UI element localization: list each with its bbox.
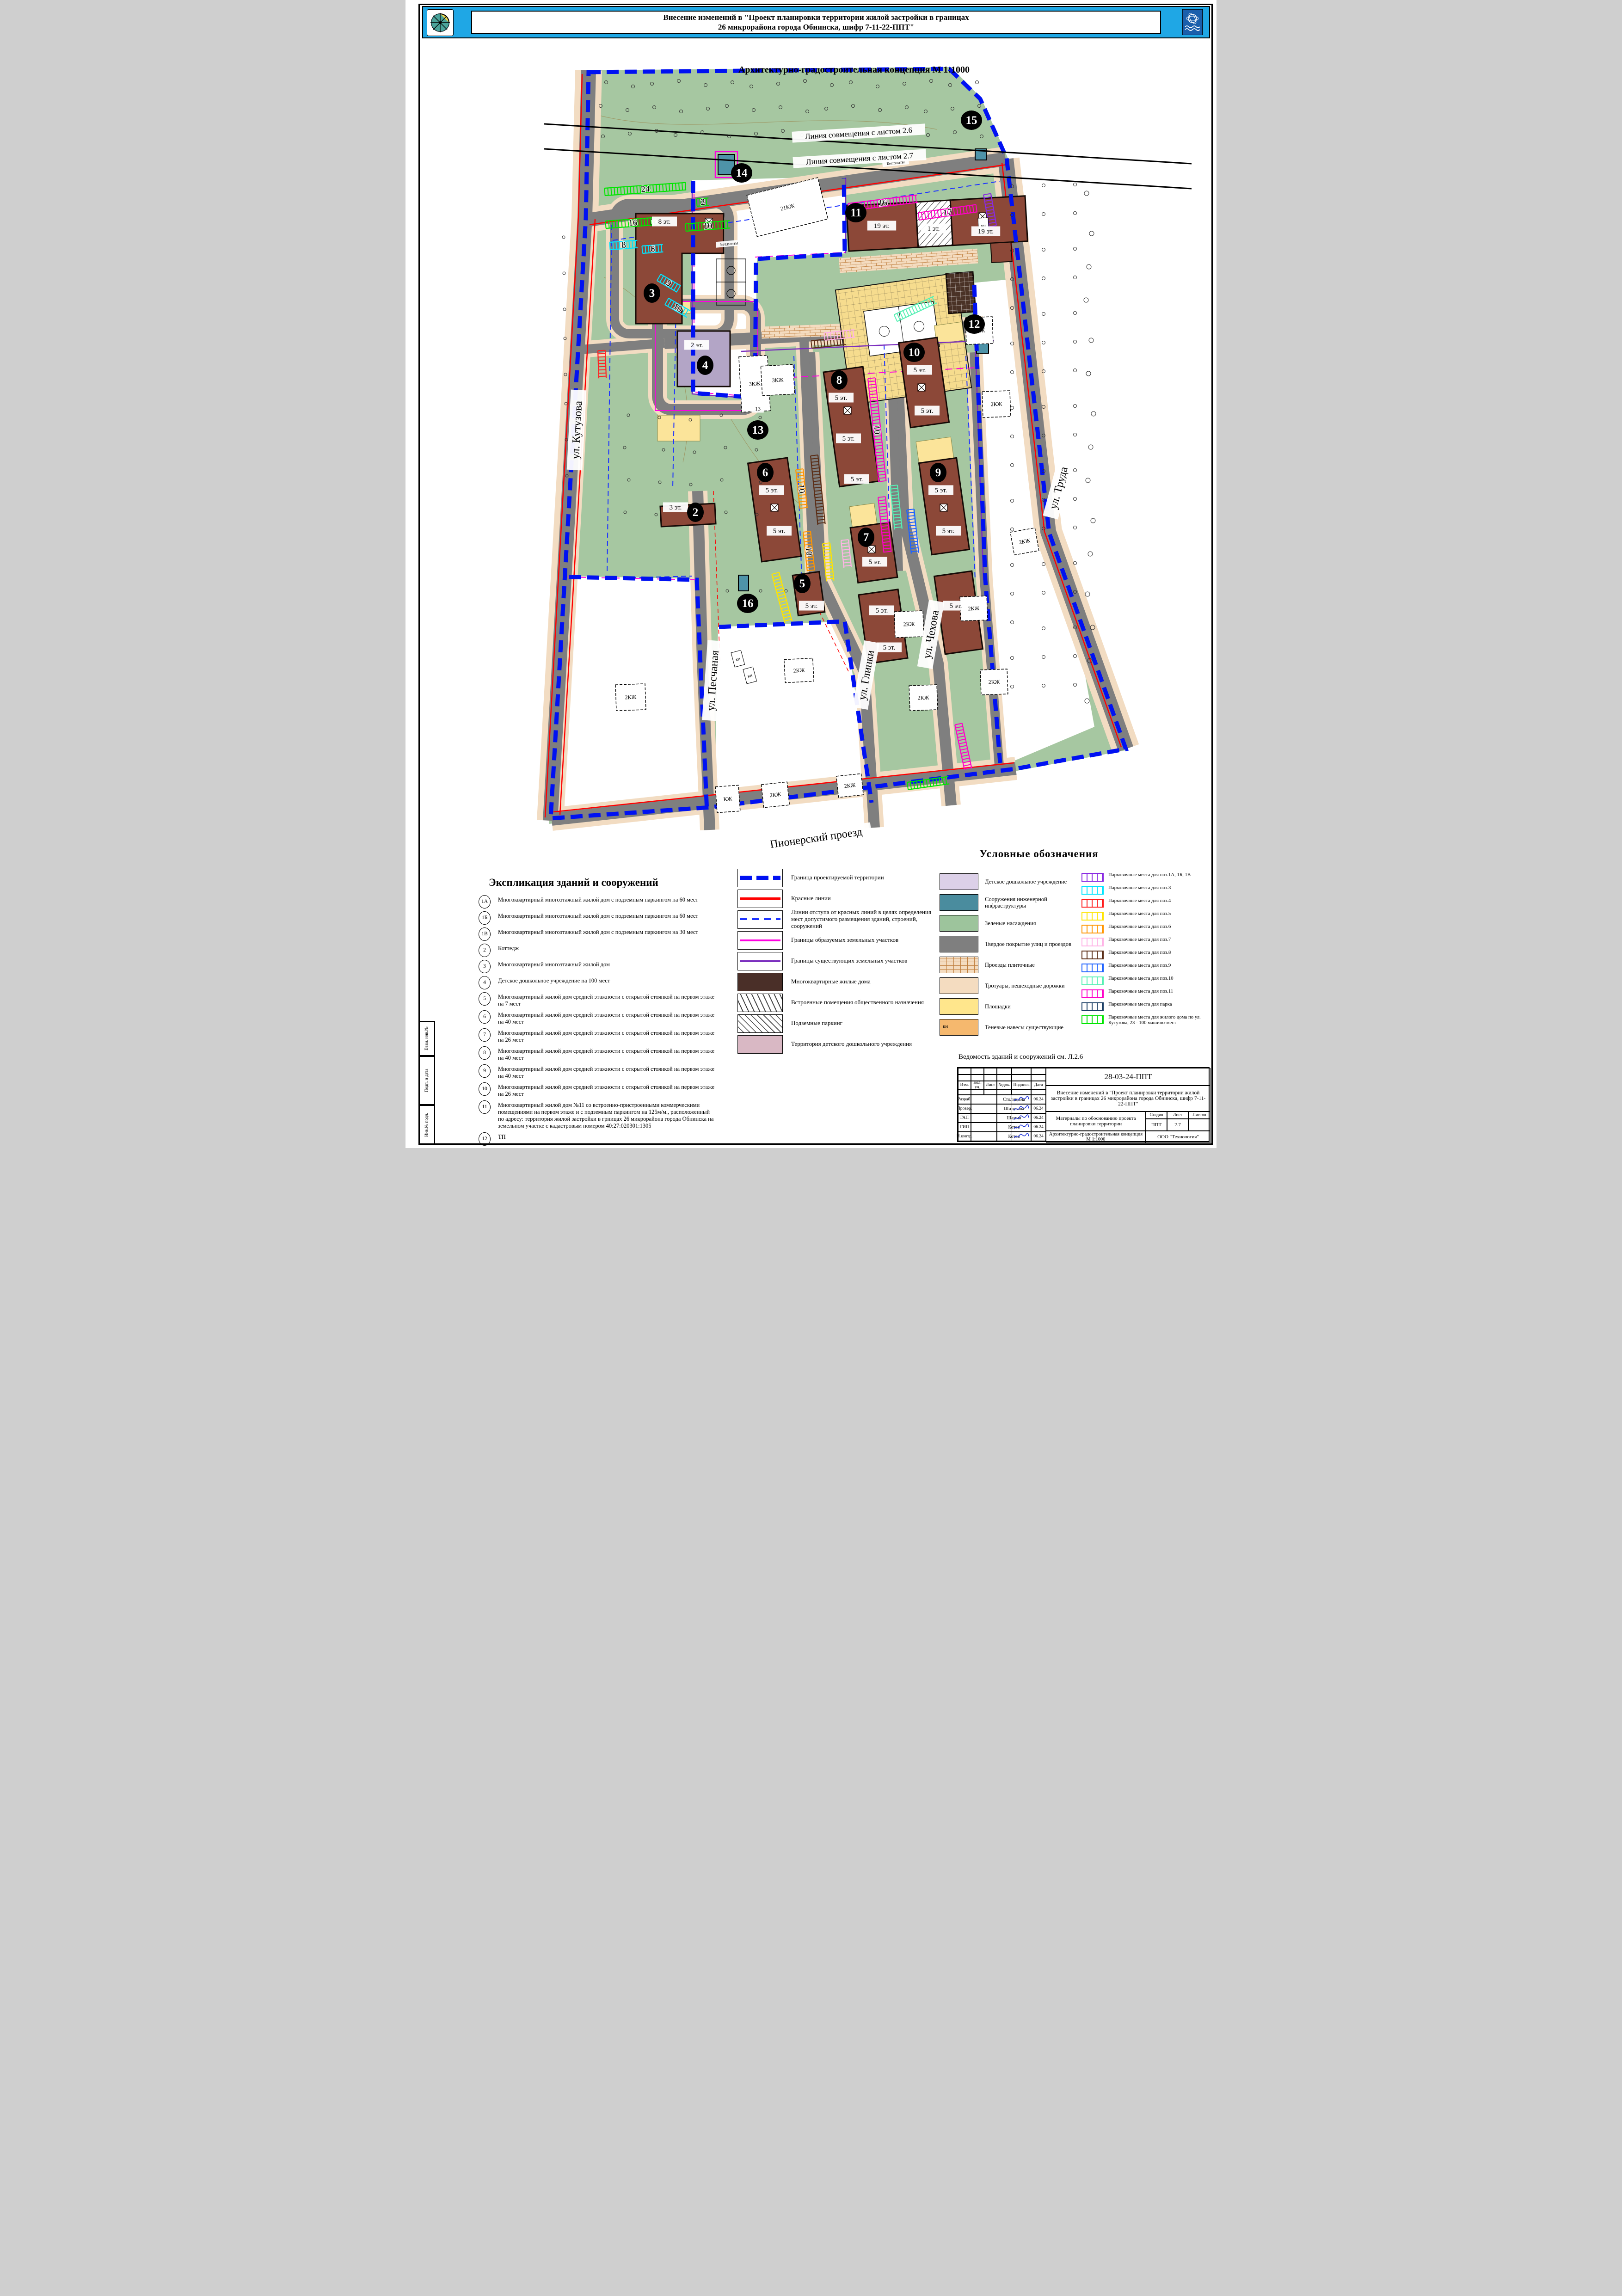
legend-area-item: Площадки — [940, 996, 1078, 1017]
tb-cell — [958, 1068, 971, 1074]
tb-sheet: 2.7 — [1167, 1119, 1188, 1131]
tb-cell — [971, 1123, 997, 1132]
tb-cell — [997, 1068, 1012, 1074]
tb-cell — [1012, 1089, 1031, 1095]
tb-date: 06.24 — [1031, 1104, 1046, 1113]
legend-parking-item: Парковочные места для поз.6 — [1081, 924, 1210, 933]
explication-item-8: 8Многоквартирный жилой дом средней этажн… — [475, 1046, 736, 1062]
item-text: Многоквартирный жилой дом средней этажно… — [498, 1010, 715, 1025]
explication-panel: Экспликация зданий и сооружений 1АМногок… — [475, 877, 736, 1148]
item-number: 7 — [479, 1028, 491, 1042]
tb-role: Провер. — [958, 1104, 971, 1113]
legend-parking-item: Парковочные места для поз.11 — [1081, 988, 1210, 998]
side-stamp-vzam: Взам. инв.№ — [418, 1021, 435, 1056]
legend-parking-item: Парковочные места для поз.9 — [1081, 963, 1210, 972]
tb-cell — [971, 1113, 997, 1123]
explication-item-1Б: 1БМногоквартирный многоэтажный жилой дом… — [475, 911, 736, 925]
parking-swatch — [1081, 951, 1104, 959]
tb-cell — [984, 1089, 997, 1095]
blue-bold-dash-swatch — [737, 869, 783, 887]
parking-swatch — [1081, 938, 1104, 946]
explication-item-6: 6Многоквартирный жилой дом средней этажн… — [475, 1010, 736, 1025]
tb-role: ГИП — [958, 1123, 971, 1132]
side-stamp-inv: Инв.№ подл. — [418, 1105, 435, 1145]
legend-label: Красные линии — [791, 895, 831, 902]
area-swatch — [940, 936, 978, 952]
tb-date: 06.24 — [1031, 1113, 1046, 1123]
legend-area-item: Зеленые насаждения — [940, 913, 1078, 933]
item-number: 5 — [479, 992, 491, 1006]
tb-cell — [1031, 1089, 1046, 1095]
tb-signature — [1012, 1095, 1031, 1104]
explication-item-1А: 1АМногоквартирный многоэтажный жилой дом… — [475, 895, 736, 909]
legend-label: Парковочные места для поз.11 — [1108, 988, 1210, 994]
tb-sheet-label: Лист — [1167, 1111, 1188, 1119]
tb-header-4: Подпись — [1012, 1081, 1031, 1089]
area-swatch — [940, 915, 978, 932]
item-number: 8 — [479, 1046, 491, 1060]
tb-header-5: Дата — [1031, 1081, 1046, 1089]
legend-label: Многоквартирные жилые дома — [791, 978, 871, 985]
legend-parking-item: Парковочные места для поз.5 — [1081, 911, 1210, 921]
legend-label: Парковочные места для поз.1А, 1Б, 1В — [1108, 872, 1210, 878]
tb-cell — [997, 1074, 1012, 1081]
tb-date: 06.24 — [1031, 1095, 1046, 1104]
concept-subtitle: Архитектурно-градостроительная концепция… — [535, 65, 1173, 75]
tb-signature — [1012, 1132, 1031, 1141]
legend-line-item: Линии отступа от красных линий в целях о… — [737, 909, 939, 930]
parking-swatch — [1081, 1015, 1104, 1024]
tb-project: Внесение изменений в "Проект планировки … — [1046, 1086, 1210, 1111]
legend-label: Парковочные места для поз.4 — [1108, 898, 1210, 903]
tb-cell — [984, 1068, 997, 1074]
tb-date: 06.24 — [1031, 1123, 1046, 1132]
explication-item-2: 2Коттедж — [475, 944, 736, 957]
tb-role: ГАП — [958, 1113, 971, 1123]
tb-signature — [1012, 1123, 1031, 1132]
city-emblem-icon — [1180, 9, 1205, 35]
legend-label: Проезды плиточные — [985, 962, 1077, 968]
item-text: Многоквартирный многоэтажный жилой дом с… — [498, 927, 715, 936]
legend-parking-item: Парковочные места для поз.8 — [1081, 950, 1210, 959]
item-text: Коттедж — [498, 944, 715, 952]
sheet: 24216102016171086910101021КЖ3КЖ3КЖ2КЖ2КЖ… — [405, 0, 1216, 1148]
tb-cell — [984, 1074, 997, 1081]
explication-item-1В: 1ВМногоквартирный многоэтажный жилой дом… — [475, 927, 736, 941]
tb-date: 06.24 — [1031, 1132, 1046, 1141]
explication-item-7: 7Многоквартирный жилой дом средней этажн… — [475, 1028, 736, 1044]
legend-label: Парковочные места для поз.6 — [1108, 924, 1210, 929]
area-swatch — [940, 998, 978, 1015]
tb-bottom-title: Архитектурно-градостроительная концепция… — [1046, 1131, 1146, 1143]
parking-swatch — [1081, 989, 1104, 998]
tb-cell — [971, 1074, 984, 1081]
tb-sheets-label: Листов — [1188, 1111, 1210, 1119]
sheet-title-line2: 26 микрорайона города Обнинска, шифр 7-1… — [718, 22, 914, 32]
item-text: Многоквартирный жилой дом средней этажно… — [498, 1046, 715, 1062]
legend-label: Границы образуемых земельных участков — [791, 937, 898, 944]
tb-cell — [971, 1068, 984, 1074]
legend-parking-item: Парковочные места для поз.10 — [1081, 976, 1210, 985]
tb-cell — [971, 1095, 997, 1104]
area-swatch — [940, 957, 978, 973]
legend-label: Парковочные места для парка — [1108, 1001, 1210, 1007]
tb-doc-code: 28-03-24-ППТ — [1046, 1068, 1210, 1086]
legend-line-item: Подземные паркинг — [737, 1013, 939, 1034]
tb-header-3: №док. — [997, 1081, 1012, 1089]
legend-label: Зеленые насаждения — [985, 920, 1077, 927]
item-text: Многоквартирный многоэтажный жилой дом с… — [498, 895, 715, 903]
item-text: Многоквартирный жилой дом средней этажно… — [498, 1082, 715, 1098]
item-text: Многоквартирный жилой дом №11 со встроен… — [498, 1100, 715, 1130]
legend-line-item: Встроенные помещения общественного назна… — [737, 992, 939, 1013]
item-number: 1А — [479, 895, 491, 909]
item-text: Многоквартирный жилой дом средней этажно… — [498, 1064, 715, 1080]
legend-label: Подземные паркинг — [791, 1020, 842, 1027]
legend-area-item: Проезды плиточные — [940, 954, 1078, 975]
tb-cell — [958, 1089, 971, 1095]
parking-swatch — [1081, 964, 1104, 972]
fill-pink-swatch — [737, 1035, 783, 1054]
legend-label: Теневые навесы существующие — [985, 1024, 1077, 1031]
explication-item-10: 10Многоквартирный жилой дом средней этаж… — [475, 1082, 736, 1098]
explication-item-4: 4Детское дошкольное учреждение на 100 ме… — [475, 976, 736, 989]
tb-cell — [958, 1074, 971, 1081]
legend-parking-item: Парковочные места для парка — [1081, 1001, 1210, 1011]
item-number: 6 — [479, 1010, 491, 1024]
fill-brown-swatch — [737, 973, 783, 991]
parking-swatch — [1081, 1002, 1104, 1011]
legend-label: Парковочные места для поз.9 — [1108, 963, 1210, 968]
legend-label: Детское дошкольное учреждение — [985, 878, 1077, 885]
item-text: Детское дошкольное учреждение на 100 мес… — [498, 976, 715, 984]
explication-item-11: 11Многоквартирный жилой дом №11 со встро… — [475, 1100, 736, 1130]
item-text: Многоквартирный жилой дом средней этажно… — [498, 1028, 715, 1044]
legend-label: Встроенные помещения общественного назна… — [791, 999, 924, 1006]
legend-label: Парковочные места для поз.3 — [1108, 885, 1210, 890]
tb-cell — [997, 1089, 1012, 1095]
tb-cell — [1031, 1068, 1046, 1074]
parking-swatch — [1081, 976, 1104, 985]
parking-swatch — [1081, 912, 1104, 921]
legend-label: Парковочные места для поз.5 — [1108, 911, 1210, 916]
legend-label: Твердое покрытие улиц и проездов — [985, 941, 1077, 947]
legend-label: Парковочные места для поз.10 — [1108, 976, 1210, 981]
tb-stage-label: Стадия — [1146, 1111, 1167, 1119]
legend-parking-item: Парковочные места для поз.3 — [1081, 885, 1210, 895]
tb-role: Н.контр. — [958, 1132, 971, 1141]
legend-label: Граница проектируемой территории — [791, 874, 884, 881]
legend-label: Границы существующих земельных участков — [791, 958, 907, 964]
parking-swatch — [1081, 873, 1104, 882]
item-text: Многоквартирный многоэтажный жилой дом с… — [498, 911, 715, 920]
parking-swatch — [1081, 886, 1104, 895]
explication-item-3: 3Многоквартирный многоэтажный жилой дом — [475, 960, 736, 973]
tb-company: ООО "Технология" — [1146, 1131, 1210, 1143]
tb-role: Разраб. — [958, 1095, 971, 1104]
tb-signature — [1012, 1104, 1031, 1113]
item-number: 1В — [479, 927, 491, 941]
item-number: 4 — [479, 976, 491, 989]
legend-parking-item: Парковочные места для поз.1А, 1Б, 1В — [1081, 872, 1210, 882]
tb-stage: ППТ — [1146, 1119, 1167, 1131]
tb-section-title: Материалы по обоснованию проекта планиро… — [1046, 1111, 1146, 1131]
legend-areas: Детское дошкольное учреждениеСооружения … — [940, 871, 1078, 1037]
item-number: 3 — [479, 960, 491, 973]
tb-cell — [971, 1089, 984, 1095]
legend-title: Условные обозначения — [933, 848, 1145, 860]
red-line-swatch — [737, 890, 783, 908]
legend-line-item: Границы образуемых земельных участков — [737, 930, 939, 951]
area-swatch — [940, 977, 978, 994]
legend-parking-item: Парковочные места для поз.4 — [1081, 898, 1210, 908]
legend-area-item: Детское дошкольное учреждение — [940, 871, 1078, 892]
item-number: 1Б — [479, 911, 491, 925]
tb-cell — [1012, 1068, 1031, 1074]
legend-label: Линии отступа от красных линий в целях о… — [791, 909, 939, 930]
explication-list: 1АМногоквартирный многоэтажный жилой дом… — [475, 895, 736, 1148]
hatch-diag-swatch — [737, 994, 783, 1012]
item-number: 10 — [479, 1082, 491, 1096]
tb-header-0: Изм. — [958, 1081, 971, 1089]
tb-header-1: Кол. уч. — [971, 1081, 984, 1089]
title-block: Изм.Кол. уч.Лист№док.ПодписьДатаРазраб.С… — [957, 1067, 1210, 1142]
blue-dash-swatch — [737, 910, 783, 929]
vedomost-note: Ведомость зданий и сооружений см. Л.2.6 — [958, 1053, 1083, 1061]
parking-swatch — [1081, 899, 1104, 908]
legend-label: Парковочные места для жилого дома по ул.… — [1108, 1014, 1210, 1026]
parking-swatch — [1081, 925, 1104, 933]
item-number: 2 — [479, 944, 491, 957]
area-swatch — [940, 894, 978, 911]
side-stamp-podp: Подп. и дата — [418, 1056, 435, 1105]
legend-label: Тротуары, пешеходные дорожки — [985, 982, 1077, 989]
tb-cell — [1031, 1074, 1046, 1081]
tb-sheets — [1188, 1119, 1210, 1131]
legend-area-item: Сооружения инженерной инфраструктуры — [940, 892, 1078, 913]
legend-line-item: Границы существующих земельных участков — [737, 951, 939, 971]
area-swatch: кн — [940, 1019, 978, 1036]
legend-lines: Граница проектируемой территорииКрасные … — [737, 867, 939, 1055]
legend-parking: Парковочные места для поз.1А, 1Б, 1ВПарк… — [1081, 872, 1210, 1029]
violet-line-swatch — [737, 952, 783, 970]
legend-label: Парковочные места для поз.8 — [1108, 950, 1210, 955]
item-text: ТП — [498, 1132, 715, 1141]
tb-cell — [971, 1132, 997, 1141]
legend-area-item: кнТеневые навесы существующие — [940, 1017, 1078, 1037]
sheet-title: Внесение изменений в "Проект планировки … — [471, 11, 1161, 34]
legend-parking-item: Парковочные места для поз.7 — [1081, 937, 1210, 946]
header-band: Внесение изменений в "Проект планировки … — [422, 6, 1210, 38]
item-number: 11 — [479, 1100, 491, 1114]
area-swatch — [940, 873, 978, 890]
legend-line-item: Территория детского дошкольного учрежден… — [737, 1034, 939, 1055]
legend-line-item: Красные линии — [737, 888, 939, 909]
legend-area-item: Тротуары, пешеходные дорожки — [940, 975, 1078, 996]
explication-title: Экспликация зданий и сооружений — [489, 877, 736, 889]
legend-label: Площадки — [985, 1003, 1077, 1010]
sheet-title-line1: Внесение изменений в "Проект планировки … — [663, 12, 969, 22]
tb-signature — [1012, 1113, 1031, 1123]
legend-line-item: Граница проектируемой территории — [737, 867, 939, 888]
legend-parking-item: Парковочные места для жилого дома по ул.… — [1081, 1014, 1210, 1026]
explication-item-5: 5Многоквартирный жилой дом средней этажн… — [475, 992, 736, 1007]
legend-label: Парковочные места для поз.7 — [1108, 937, 1210, 942]
item-text: Многоквартирный многоэтажный жилой дом — [498, 960, 715, 968]
item-number: 12 — [479, 1132, 491, 1146]
tb-header-2: Лист — [984, 1081, 997, 1089]
item-text: Многоквартирный жилой дом средней этажно… — [498, 992, 715, 1007]
explication-item-12: 12ТП — [475, 1132, 736, 1146]
legend-label: Территория детского дошкольного учрежден… — [791, 1041, 912, 1048]
magenta-line-swatch — [737, 931, 783, 950]
legend-line-item: Многоквартирные жилые дома — [737, 971, 939, 992]
legend-area-item: Твердое покрытие улиц и проездов — [940, 933, 1078, 954]
explication-item-9: 9Многоквартирный жилой дом средней этажн… — [475, 1064, 736, 1080]
tb-cell — [971, 1104, 997, 1113]
tb-cell — [1012, 1074, 1031, 1081]
item-number: 9 — [479, 1064, 491, 1078]
legend-label: Сооружения инженерной инфраструктуры — [985, 896, 1077, 909]
compass-logo-icon — [427, 9, 454, 36]
hatch-cross-swatch — [737, 1014, 783, 1033]
